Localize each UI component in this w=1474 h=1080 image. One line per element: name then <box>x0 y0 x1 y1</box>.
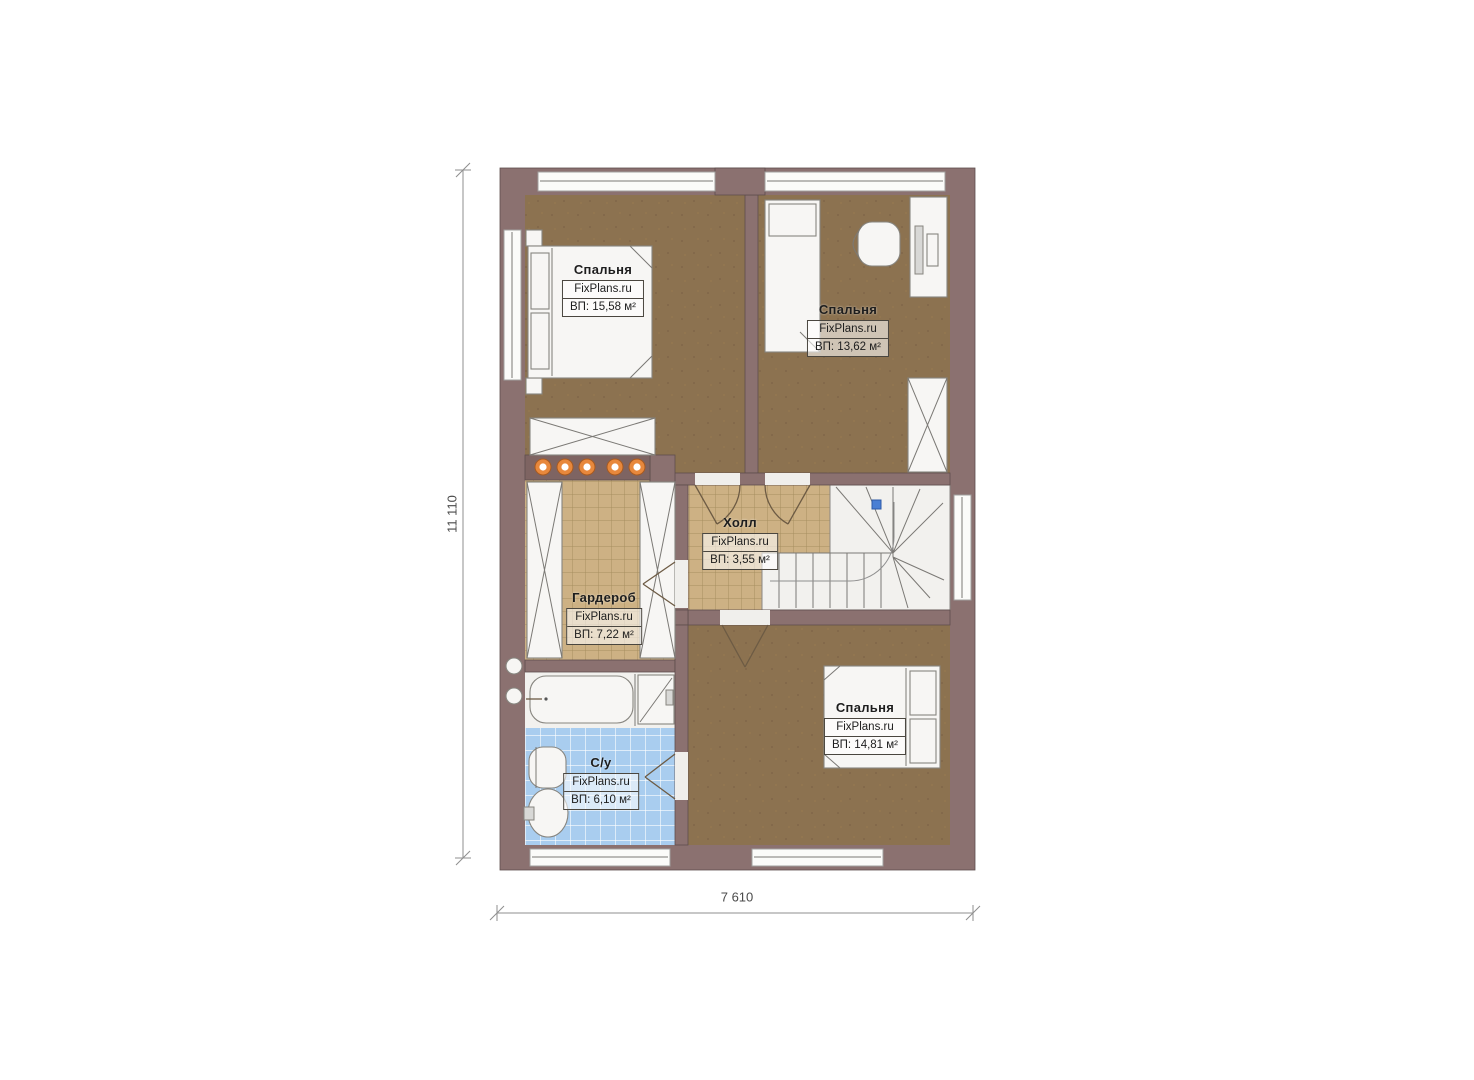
brand-text: FixPlans.ru <box>564 774 638 791</box>
closet-icon <box>530 418 655 455</box>
room-label-bedroom-2: Спальня FixPlans.ru ВП: 13,62 м² <box>807 302 889 357</box>
room-info-box: FixPlans.ru ВП: 7,22 м² <box>566 608 642 645</box>
room-info-box: FixPlans.ru ВП: 3,55 м² <box>702 533 778 570</box>
brand-text: FixPlans.ru <box>567 609 641 626</box>
brand-text: FixPlans.ru <box>825 719 905 736</box>
floor-plan-page: Спальня FixPlans.ru ВП: 15,58 м² Спальня… <box>0 0 1474 1080</box>
brand-text: FixPlans.ru <box>703 534 777 551</box>
room-label-bedroom-1: Спальня FixPlans.ru ВП: 15,58 м² <box>562 262 644 317</box>
room-area: ВП: 14,81 м² <box>825 736 905 754</box>
room-area: ВП: 15,58 м² <box>563 298 643 316</box>
shower-icon <box>638 675 674 724</box>
room-area: ВП: 3,55 м² <box>703 551 777 569</box>
dimension-height: 11 110 <box>445 495 460 533</box>
room-name: С/у <box>590 755 611 770</box>
room-info-box: FixPlans.ru ВП: 13,62 м² <box>807 320 889 357</box>
room-name: Холл <box>723 515 757 530</box>
office-chair-icon <box>853 222 900 266</box>
room-label-bedroom-3: Спальня FixPlans.ru ВП: 14,81 м² <box>824 700 906 755</box>
room-info-box: FixPlans.ru ВП: 6,10 м² <box>563 773 639 810</box>
room-label-bathroom: С/у FixPlans.ru ВП: 6,10 м² <box>563 755 639 810</box>
wardrobe-cabinet-icon <box>908 378 947 472</box>
bathtub-icon <box>526 674 635 726</box>
dimension-width: 7 610 <box>721 890 754 905</box>
room-area: ВП: 13,62 м² <box>808 338 888 356</box>
room-info-box: FixPlans.ru ВП: 15,58 м² <box>562 280 644 317</box>
room-area: ВП: 7,22 м² <box>567 626 641 644</box>
room-area: ВП: 6,10 м² <box>564 791 638 809</box>
dimension-line-horizontal <box>490 905 980 921</box>
toilet-icon <box>529 747 566 788</box>
room-name: Спальня <box>819 302 877 317</box>
spotlight-row <box>525 455 650 480</box>
room-name: Спальня <box>574 262 632 277</box>
room-label-wardrobe: Гардероб FixPlans.ru ВП: 7,22 м² <box>566 590 642 645</box>
room-name: Спальня <box>836 700 894 715</box>
room-info-box: FixPlans.ru ВП: 14,81 м² <box>824 718 906 755</box>
stair-section-marker <box>872 500 881 509</box>
desk-icon <box>910 197 947 297</box>
brand-text: FixPlans.ru <box>808 321 888 338</box>
room-name: Гардероб <box>572 590 636 605</box>
room-label-hall: Холл FixPlans.ru ВП: 3,55 м² <box>702 515 778 570</box>
brand-text: FixPlans.ru <box>563 281 643 298</box>
